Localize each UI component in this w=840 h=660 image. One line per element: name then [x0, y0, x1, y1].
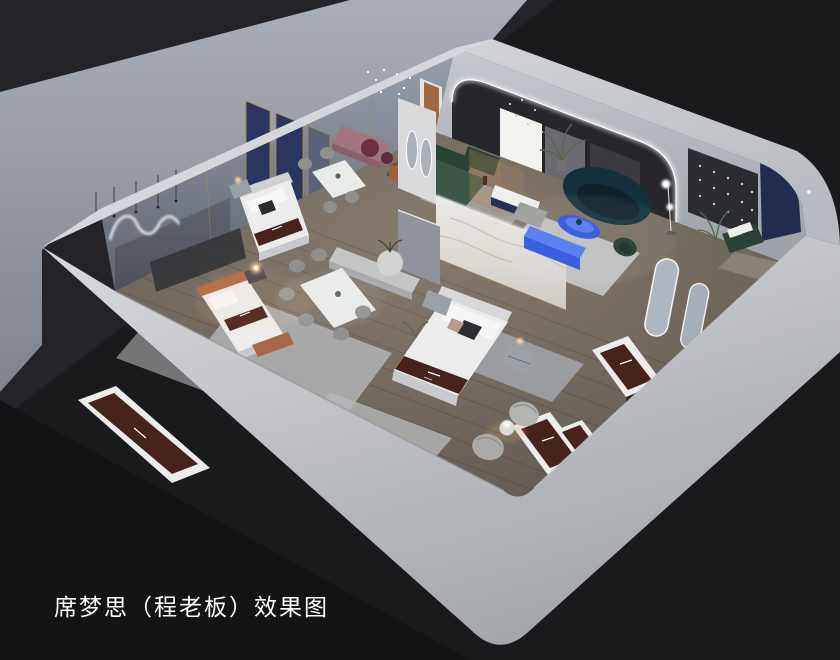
- arch-string-lights: [527, 123, 529, 125]
- floor-lamp: [667, 204, 674, 211]
- nightstand-right: [517, 338, 523, 344]
- chandelier: [380, 91, 382, 93]
- dining-set-1: [345, 191, 359, 203]
- string-lights: [699, 179, 701, 181]
- render-caption: 席梦思（程老板）效果图: [54, 588, 329, 622]
- string-lights: [727, 177, 729, 179]
- arch-string-lights: [541, 131, 543, 133]
- entry-mirror-panel: [421, 139, 432, 177]
- light-pools: [495, 195, 675, 285]
- dining-set-1: [323, 201, 337, 213]
- pendant-lights: [157, 206, 160, 209]
- arch-string-lights: [515, 115, 517, 117]
- glass-divider: [483, 176, 487, 185]
- string-lights: [713, 171, 715, 173]
- string-lights: [699, 165, 701, 167]
- floor-lamp: [662, 180, 671, 189]
- string-lights: [741, 219, 743, 221]
- dining-set-2: [289, 260, 305, 273]
- chandelier: [383, 69, 385, 71]
- arch-string-lights: [521, 99, 523, 101]
- arch-interior: [557, 160, 566, 171]
- string-lights: [741, 201, 743, 203]
- round-table-burgundy: [361, 139, 379, 157]
- string-lights: [713, 203, 715, 205]
- showroom-render: 席梦思（程老板）效果图: [0, 0, 840, 660]
- chandelier: [398, 93, 400, 95]
- chandelier: [367, 71, 369, 73]
- arch-string-lights: [534, 109, 536, 111]
- dining-set-1: [320, 147, 334, 159]
- chandelier: [375, 79, 377, 81]
- entry-mirror-panel: [398, 98, 436, 204]
- string-lights: [741, 183, 743, 185]
- pedestal-table: [377, 250, 403, 276]
- string-lights: [751, 191, 753, 193]
- pendant-lights: [175, 200, 178, 203]
- dining-set-1: [335, 173, 340, 178]
- render-canvas: [0, 0, 840, 660]
- dining-set-2: [333, 328, 349, 341]
- nightstand: [235, 177, 241, 183]
- glow-lamp: [254, 266, 259, 271]
- string-lights: [751, 209, 753, 211]
- entry-mirror-panel: [407, 131, 418, 169]
- pendant-lights: [135, 211, 138, 214]
- pendant-lights: [113, 215, 116, 218]
- chandelier: [403, 87, 405, 89]
- arch-string-lights: [509, 103, 511, 105]
- dining-set-1: [298, 158, 312, 170]
- dining-set-2: [311, 249, 327, 262]
- wall-detail: [807, 190, 811, 194]
- string-lights: [699, 195, 701, 197]
- string-lights: [713, 187, 715, 189]
- light-pools: [275, 272, 385, 328]
- round-table-small: [381, 152, 393, 164]
- string-lights: [727, 193, 729, 195]
- cube-lamp: [504, 421, 510, 427]
